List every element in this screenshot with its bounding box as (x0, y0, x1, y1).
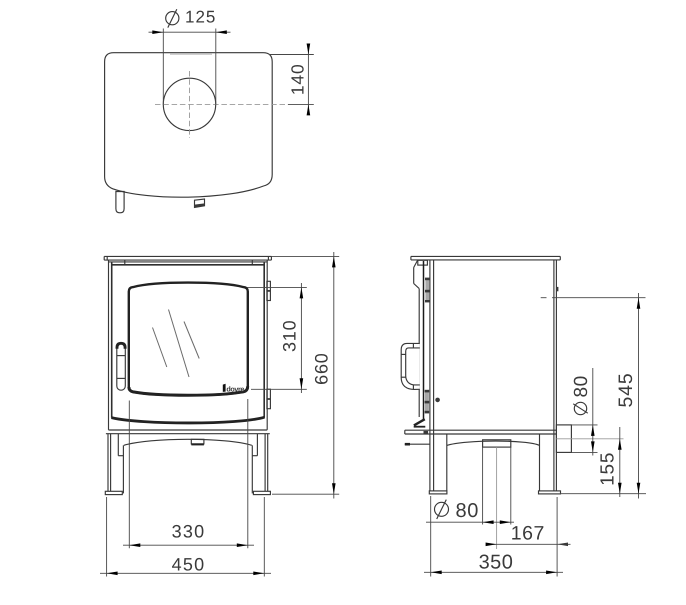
svg-text:167: 167 (511, 522, 545, 544)
svg-text:125: 125 (185, 8, 216, 27)
svg-text:450: 450 (172, 555, 206, 575)
svg-text:140: 140 (288, 63, 308, 95)
svg-text:545: 545 (615, 373, 637, 408)
svg-text:660: 660 (311, 352, 331, 384)
svg-text:80: 80 (571, 375, 592, 397)
svg-text:80: 80 (456, 500, 479, 522)
svg-text:dovre: dovre (226, 384, 244, 393)
svg-text:350: 350 (479, 551, 514, 573)
svg-text:310: 310 (279, 320, 299, 352)
svg-text:330: 330 (172, 522, 206, 542)
svg-text:155: 155 (598, 452, 619, 486)
